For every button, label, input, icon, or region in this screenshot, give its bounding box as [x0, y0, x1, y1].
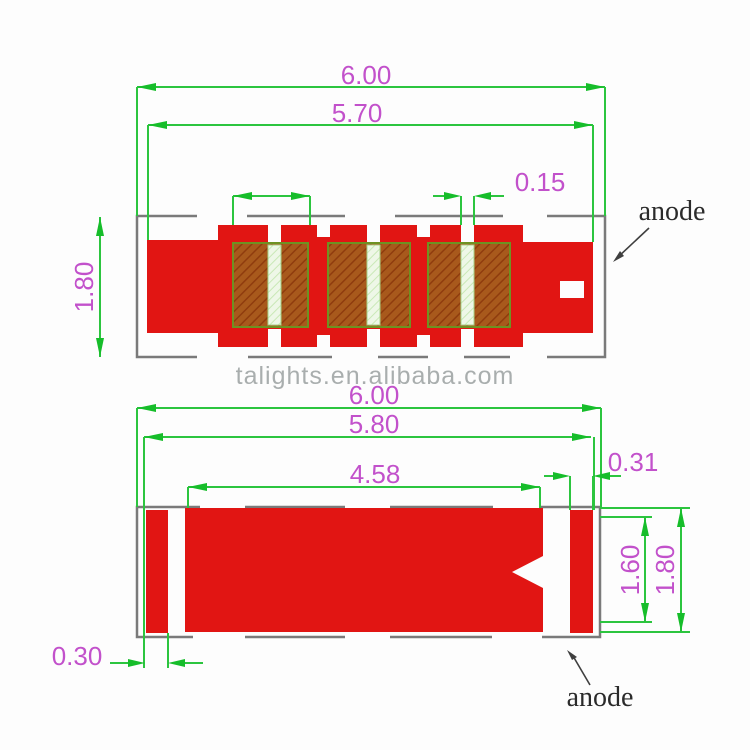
arrowhead: [137, 404, 156, 412]
arrowhead: [188, 483, 207, 491]
dim-label-left-pad-width: 0.30: [52, 641, 103, 671]
bottom-view: 6.00 5.80 4.58 0.31 0.30 1.60 1.80 anode: [52, 380, 690, 713]
anode-mark-notch: [560, 281, 584, 298]
anode-label: anode: [567, 682, 634, 713]
anode-side-pad: [570, 510, 593, 633]
anode-arrowhead: [567, 650, 577, 660]
pale-gap-strip: [367, 245, 380, 325]
top-view: 6.00 5.70 0.15 1.80 anode: [69, 60, 705, 357]
dim-label-body-length: 5.80: [349, 409, 400, 439]
dim-label-height: 1.80: [650, 545, 680, 596]
main-thermal-pad: [185, 508, 543, 632]
arrowhead: [641, 517, 649, 536]
arrowhead: [553, 472, 570, 480]
arrowhead: [291, 192, 310, 200]
arrowhead: [474, 192, 491, 200]
arrowhead: [96, 217, 104, 236]
anode-arrow-line: [573, 656, 590, 685]
dim-label-overall-length: 6.00: [341, 60, 392, 90]
pale-gap-strip: [461, 245, 474, 325]
arrowhead: [233, 192, 252, 200]
arrowhead: [168, 659, 185, 667]
arrowhead: [574, 121, 593, 129]
arrowhead: [137, 83, 156, 91]
dim-label-gap-width: 0.15: [515, 167, 566, 197]
edge-notch: [317, 225, 330, 237]
dim-label-pad-length: 4.58: [350, 459, 401, 489]
arrowhead: [677, 613, 685, 632]
arrowhead: [144, 433, 163, 441]
arrowhead: [677, 508, 685, 527]
arrowhead: [582, 404, 601, 412]
dim-label-inner-height: 1.60: [615, 545, 645, 596]
led-package-dimension-drawing: 6.00 5.70 0.15 1.80 anode talights.en.al…: [0, 0, 750, 750]
separation-slit: [268, 225, 281, 244]
arrowhead: [148, 121, 167, 129]
arrowhead: [96, 338, 104, 357]
dim-label-right-gap: 0.31: [608, 447, 659, 477]
anode-label: anode: [639, 196, 706, 227]
separation-slit: [268, 329, 281, 347]
edge-notch: [417, 225, 430, 237]
cathode-side-pad: [146, 510, 168, 633]
led-body-left-cap: [147, 240, 233, 333]
dim-label-body-length: 5.70: [332, 98, 383, 128]
arrowhead: [572, 433, 591, 441]
dim-label-height: 1.80: [69, 262, 99, 313]
edge-notch: [317, 335, 330, 347]
separation-slit: [367, 225, 380, 244]
arrowhead: [128, 659, 145, 667]
arrowhead: [521, 483, 540, 491]
drawing-canvas: 6.00 5.70 0.15 1.80 anode talights.en.al…: [0, 0, 750, 750]
pale-gap-strip: [268, 245, 281, 325]
arrowhead: [641, 603, 649, 622]
separation-slit: [461, 225, 474, 244]
dim-label-overall-length: 6.00: [349, 380, 400, 410]
arrowhead: [444, 192, 461, 200]
separation-slit: [461, 329, 474, 347]
separation-slit: [367, 329, 380, 347]
edge-notch: [417, 335, 430, 347]
arrowhead: [586, 83, 605, 91]
